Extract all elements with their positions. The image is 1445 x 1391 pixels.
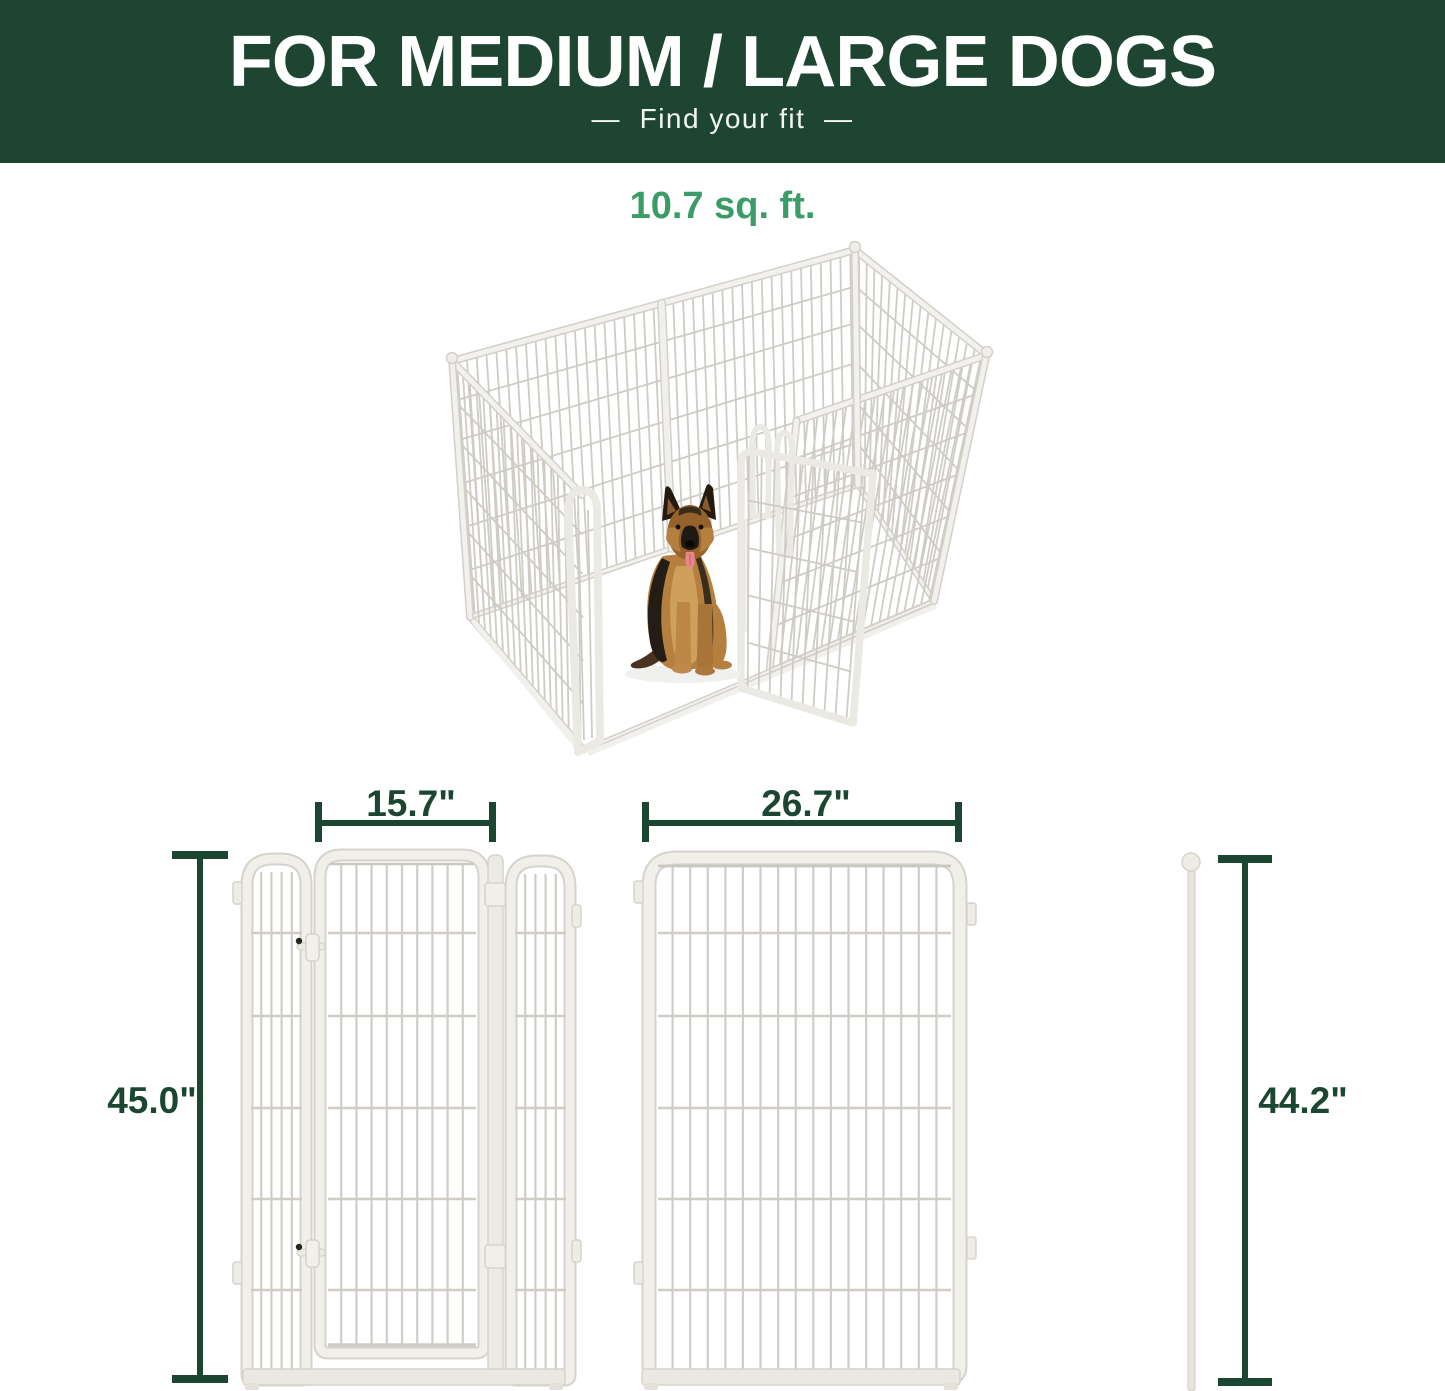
svg-text:45.0": 45.0" <box>107 1080 197 1121</box>
svg-text:44.2": 44.2" <box>1258 1080 1348 1121</box>
svg-text:15.7": 15.7" <box>366 783 456 824</box>
svg-text:26.7": 26.7" <box>761 783 851 824</box>
